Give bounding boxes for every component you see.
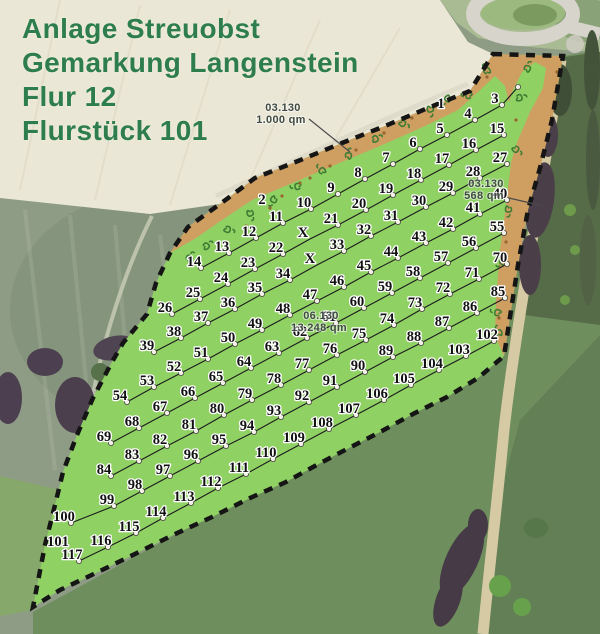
- tree-number: 15: [490, 121, 505, 137]
- tree-number: 26: [158, 300, 173, 316]
- tree-number: 111: [229, 460, 249, 476]
- tree-number: 71: [465, 265, 480, 281]
- tree-number: 70: [493, 250, 508, 266]
- tree-number: 88: [407, 329, 422, 345]
- soil-dot: [298, 181, 301, 184]
- area-size-label: 13.248 qm: [291, 322, 347, 334]
- tree-number: 68: [125, 414, 140, 430]
- tree-position-dot: [390, 161, 395, 166]
- tree-number: 107: [338, 401, 360, 417]
- tree-number: 85: [491, 284, 506, 300]
- tree-number: 11: [269, 209, 283, 225]
- tree-number: 51: [194, 345, 209, 361]
- tree-number: 21: [324, 211, 339, 227]
- plan-title-line4: Flurstück 101: [22, 114, 359, 148]
- tree-number: 72: [436, 280, 451, 296]
- plan-title-line3: Flur 12: [22, 80, 359, 114]
- tree-number: 37: [194, 309, 209, 325]
- tree-number: 9: [327, 180, 334, 196]
- area-size-label: 568 qm: [464, 190, 504, 202]
- soil-dot: [485, 75, 488, 78]
- tree-position-dot: [472, 117, 477, 122]
- tree-number: 94: [240, 418, 255, 434]
- tree-number: 57: [434, 249, 449, 265]
- tree-number: 23: [241, 255, 256, 271]
- tree-number: 93: [267, 403, 282, 419]
- tree-number: 50: [221, 330, 236, 346]
- tree-number: 46: [330, 273, 345, 289]
- tree-number: 78: [267, 371, 282, 387]
- road-junction: [566, 35, 584, 53]
- tree-number: 49: [248, 316, 263, 332]
- tree-position-dot: [515, 84, 520, 89]
- tree-number: 104: [421, 356, 443, 372]
- tree-number: 99: [100, 492, 115, 508]
- tree-number: 45: [357, 258, 372, 274]
- tree-number: 5: [436, 121, 443, 137]
- tree-number: 35: [248, 280, 263, 296]
- soil-dot: [497, 316, 500, 319]
- tree-number: 83: [125, 447, 140, 463]
- plan-title-line2: Gemarkung Langenstein: [22, 46, 359, 80]
- soil-dot: [382, 131, 385, 134]
- tree-number: 41: [466, 200, 481, 216]
- soil-dot: [514, 118, 517, 121]
- tree-number: 52: [167, 359, 182, 375]
- tree-number: 43: [412, 229, 427, 245]
- flurstueck-number-101: 101: [47, 534, 69, 550]
- tree-number: 56: [462, 234, 477, 250]
- tree-number: 29: [439, 179, 454, 195]
- tree-number: 22: [269, 240, 284, 256]
- tree-number: 53: [140, 373, 155, 389]
- tree-position-dot: [417, 146, 422, 151]
- orchard-plan-map: 123456789101112131415161718192021X222324…: [0, 0, 600, 634]
- tree-number: 65: [209, 369, 224, 385]
- tree-number: 31: [384, 208, 399, 224]
- tree-number: 116: [91, 533, 112, 549]
- tree-position-dot: [362, 176, 367, 181]
- tree-number: 102: [476, 327, 498, 343]
- tree-number: 89: [379, 343, 394, 359]
- tree-number: 73: [408, 295, 423, 311]
- tree-number: 44: [384, 244, 399, 260]
- tree-number: 59: [378, 279, 393, 295]
- tree-number: 8: [354, 165, 361, 181]
- tree-number: 1: [437, 96, 444, 112]
- tree-number: 38: [167, 324, 182, 340]
- plan-title-line1: Anlage Streuobst: [22, 12, 359, 46]
- tree-number: 81: [182, 417, 197, 433]
- tree-number: 108: [311, 415, 333, 431]
- tree-number: 67: [153, 399, 168, 415]
- tree-number: 34: [276, 266, 291, 282]
- tree-number: 114: [146, 504, 167, 520]
- tree-number: 100: [53, 509, 75, 525]
- tree-number: 77: [295, 356, 310, 372]
- tree-number: 39: [140, 338, 155, 354]
- tree-number: 60: [350, 294, 365, 310]
- tree-number: 110: [256, 445, 277, 461]
- tree-number: 64: [237, 354, 252, 370]
- tree-number: 87: [435, 314, 450, 330]
- tree-number: 18: [407, 166, 422, 182]
- tree-number: 66: [181, 384, 196, 400]
- tree-number: 115: [119, 519, 140, 535]
- area-code-label: 03.130: [468, 178, 503, 190]
- tree-number: 84: [97, 462, 112, 478]
- tree-number: 20: [352, 196, 367, 212]
- tree-number: 3: [491, 91, 498, 107]
- tree-number: 48: [276, 301, 291, 317]
- tree-position-dot: [444, 132, 449, 137]
- tree-number: 33: [330, 237, 345, 253]
- tree-number: 95: [212, 432, 227, 448]
- tree-number: 54: [113, 388, 128, 404]
- tree-number: 98: [128, 477, 143, 493]
- tree-number: 74: [380, 311, 395, 327]
- tree-number: 92: [295, 388, 310, 404]
- tree-number: 10: [297, 195, 312, 211]
- tree-number: 14: [187, 254, 202, 270]
- tree-number: 32: [357, 222, 372, 238]
- removed-tree-x-mark: X: [298, 225, 309, 241]
- soil-dot: [410, 116, 413, 119]
- tree-number: 6: [409, 135, 416, 151]
- tree-number: 75: [352, 326, 367, 342]
- tree-number: 69: [97, 429, 112, 445]
- tree-number: 19: [379, 181, 394, 197]
- soil-dot: [504, 240, 507, 243]
- tree-number: 27: [493, 150, 508, 166]
- tree-number: 80: [210, 401, 225, 417]
- tree-position-dot: [499, 102, 504, 107]
- tree-number: 2: [258, 192, 265, 208]
- tree-number: 97: [156, 462, 171, 478]
- tree-number: 113: [174, 489, 195, 505]
- tree-number: 112: [201, 474, 222, 490]
- tree-number: 86: [463, 299, 478, 315]
- tree-number: 7: [382, 150, 389, 166]
- tree-number: 4: [464, 106, 471, 122]
- tree-number: 105: [393, 371, 415, 387]
- tree-number: 91: [323, 373, 338, 389]
- tree-position-dot: [335, 191, 340, 196]
- tree-number: 58: [406, 264, 421, 280]
- tree-number: 30: [412, 193, 427, 209]
- soil-dot: [354, 148, 357, 151]
- removed-tree-x-mark: X: [305, 251, 316, 267]
- tree-number: 106: [366, 386, 388, 402]
- tree-number: 55: [490, 219, 505, 235]
- tree-number: 109: [283, 430, 305, 446]
- tree-number: 17: [435, 151, 450, 167]
- soil-dot: [328, 164, 331, 167]
- soil-dot: [280, 194, 283, 197]
- tree-number: 76: [323, 341, 338, 357]
- tree-number: 90: [351, 358, 366, 374]
- tree-number: 42: [439, 215, 454, 231]
- soil-dot: [308, 176, 311, 179]
- tree-number: 24: [214, 270, 229, 286]
- tree-number: 25: [186, 285, 201, 301]
- tree-number: 47: [303, 287, 318, 303]
- tree-number: 13: [215, 239, 230, 255]
- tree-number: 12: [242, 224, 257, 240]
- plan-title: Anlage Streuobst Gemarkung Langenstein F…: [22, 12, 359, 148]
- tree-number: 82: [153, 432, 168, 448]
- tree-number: 79: [238, 386, 253, 402]
- area-code-label: 06.130: [303, 310, 338, 322]
- tree-number: 103: [448, 342, 470, 358]
- tree-number: 63: [265, 339, 280, 355]
- tree-number: 36: [221, 295, 236, 311]
- tree-number: 96: [184, 447, 199, 463]
- island-texture: [513, 4, 557, 26]
- tree-number: 16: [462, 136, 477, 152]
